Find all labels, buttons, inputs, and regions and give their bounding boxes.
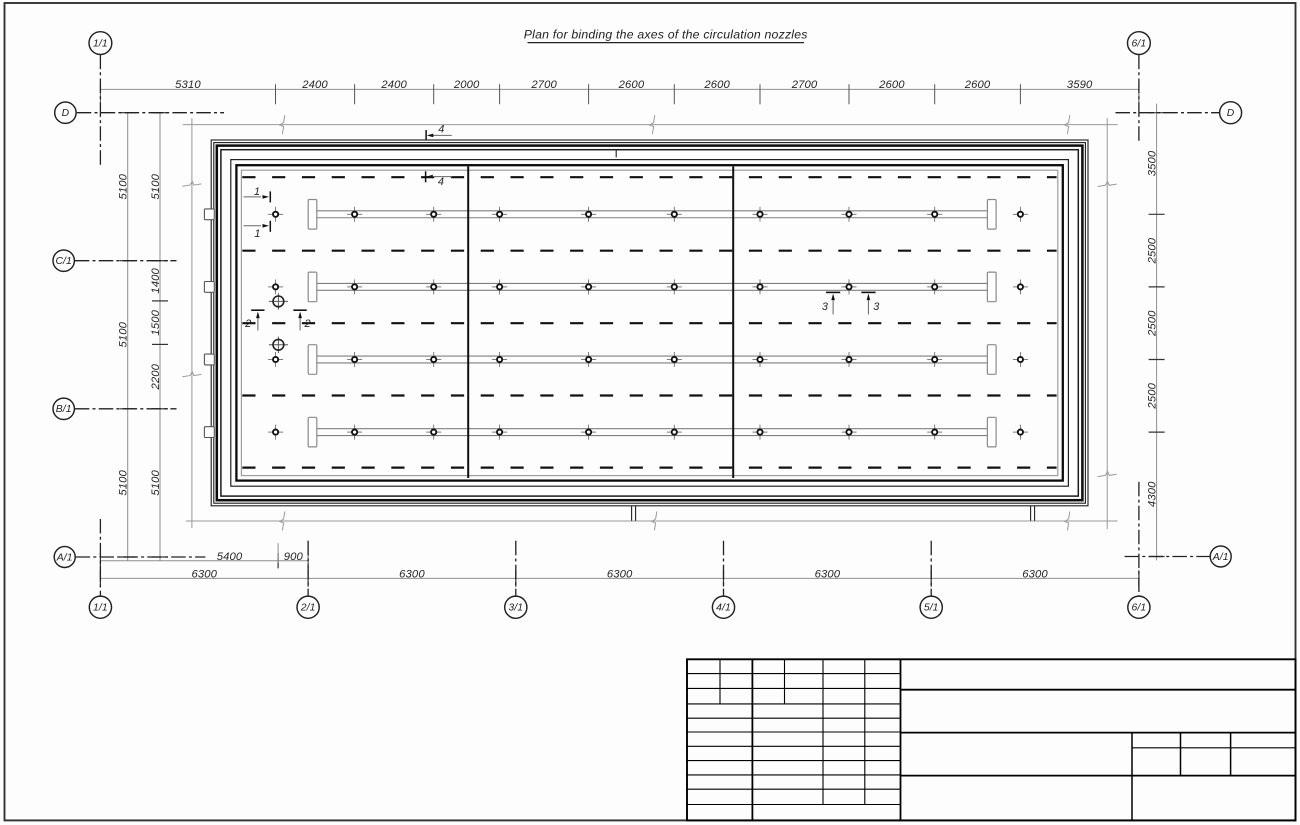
svg-text:Plan for binding the axes of t: Plan for binding the axes of the circula… [524, 28, 808, 42]
svg-text:D: D [62, 108, 70, 119]
svg-text:2500: 2500 [1147, 310, 1159, 337]
svg-text:900: 900 [284, 551, 304, 563]
svg-text:5310: 5310 [175, 79, 201, 91]
svg-text:4: 4 [438, 124, 444, 136]
svg-text:1: 1 [254, 228, 260, 240]
svg-text:1400: 1400 [150, 268, 162, 294]
svg-text:2200: 2200 [150, 363, 162, 390]
svg-text:2600: 2600 [964, 79, 991, 91]
svg-text:5100: 5100 [118, 173, 130, 199]
svg-text:2: 2 [303, 318, 310, 330]
svg-text:4: 4 [438, 176, 444, 188]
svg-text:2500: 2500 [1147, 237, 1159, 264]
svg-text:6300: 6300 [399, 569, 425, 581]
svg-text:2700: 2700 [791, 79, 818, 91]
svg-text:6/1: 6/1 [1132, 603, 1147, 614]
svg-text:6300: 6300 [607, 569, 633, 581]
svg-text:5100: 5100 [118, 470, 130, 496]
svg-text:2700: 2700 [530, 79, 557, 91]
svg-text:2: 2 [244, 318, 251, 330]
svg-text:3: 3 [873, 301, 880, 313]
svg-text:B/1: B/1 [56, 404, 72, 415]
svg-text:4/1: 4/1 [716, 603, 731, 614]
svg-text:5100: 5100 [118, 321, 130, 347]
svg-text:6300: 6300 [815, 569, 841, 581]
svg-text:D: D [1227, 108, 1235, 119]
svg-text:2600: 2600 [618, 79, 645, 91]
svg-text:1: 1 [254, 186, 260, 198]
svg-text:2600: 2600 [878, 79, 905, 91]
svg-text:5100: 5100 [150, 173, 162, 199]
svg-text:5100: 5100 [150, 470, 162, 496]
svg-text:3/1: 3/1 [508, 603, 523, 614]
svg-text:2400: 2400 [380, 79, 407, 91]
svg-text:6300: 6300 [1022, 569, 1048, 581]
svg-text:6/1: 6/1 [1132, 39, 1147, 50]
svg-text:2/1: 2/1 [300, 603, 316, 614]
svg-text:2600: 2600 [703, 79, 730, 91]
svg-text:1/1: 1/1 [93, 603, 108, 614]
svg-text:5/1: 5/1 [924, 603, 939, 614]
svg-text:5400: 5400 [217, 551, 243, 563]
svg-text:A/1: A/1 [1212, 552, 1229, 563]
svg-text:A/1: A/1 [56, 552, 73, 563]
svg-text:3500: 3500 [1147, 150, 1159, 176]
svg-text:2000: 2000 [453, 79, 480, 91]
svg-text:1/1: 1/1 [93, 39, 108, 50]
svg-text:2500: 2500 [1147, 382, 1159, 409]
svg-text:4300: 4300 [1147, 481, 1159, 507]
svg-text:2400: 2400 [301, 79, 328, 91]
svg-text:3: 3 [822, 301, 829, 313]
svg-text:6300: 6300 [191, 569, 217, 581]
svg-text:3590: 3590 [1067, 79, 1093, 91]
svg-text:1500: 1500 [150, 309, 162, 335]
svg-text:C/1: C/1 [55, 256, 71, 267]
